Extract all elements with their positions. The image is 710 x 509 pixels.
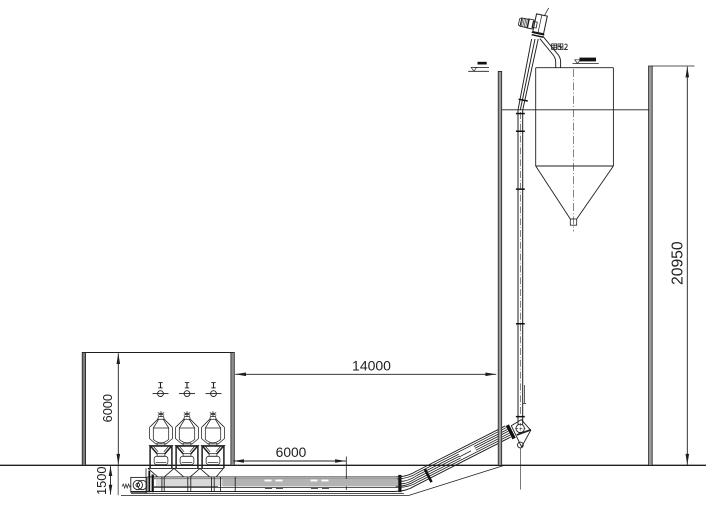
svg-text:6000: 6000 [100,394,115,422]
svg-text:14000: 14000 [352,358,391,374]
svg-text:20950: 20950 [670,241,687,285]
svg-text:1500: 1500 [94,467,109,495]
svg-text:6000: 6000 [276,445,307,460]
